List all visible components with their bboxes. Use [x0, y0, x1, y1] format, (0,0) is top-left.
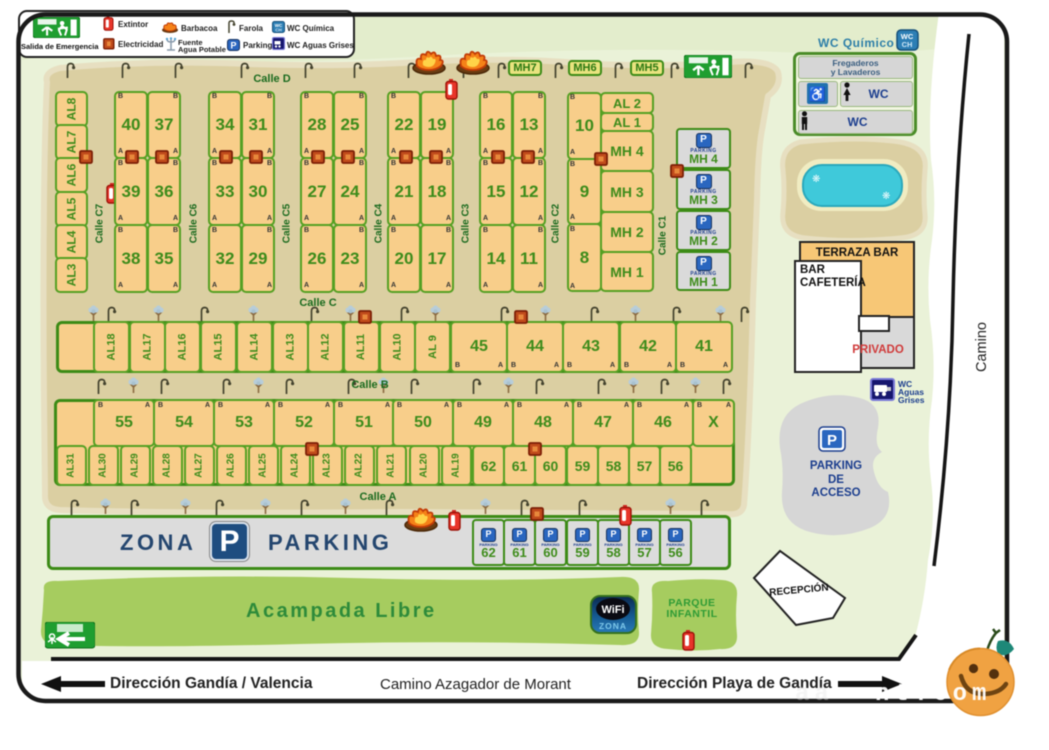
- svg-text:nt.com: nt.com: [875, 681, 991, 708]
- svg-text:aa: aa: [795, 681, 834, 708]
